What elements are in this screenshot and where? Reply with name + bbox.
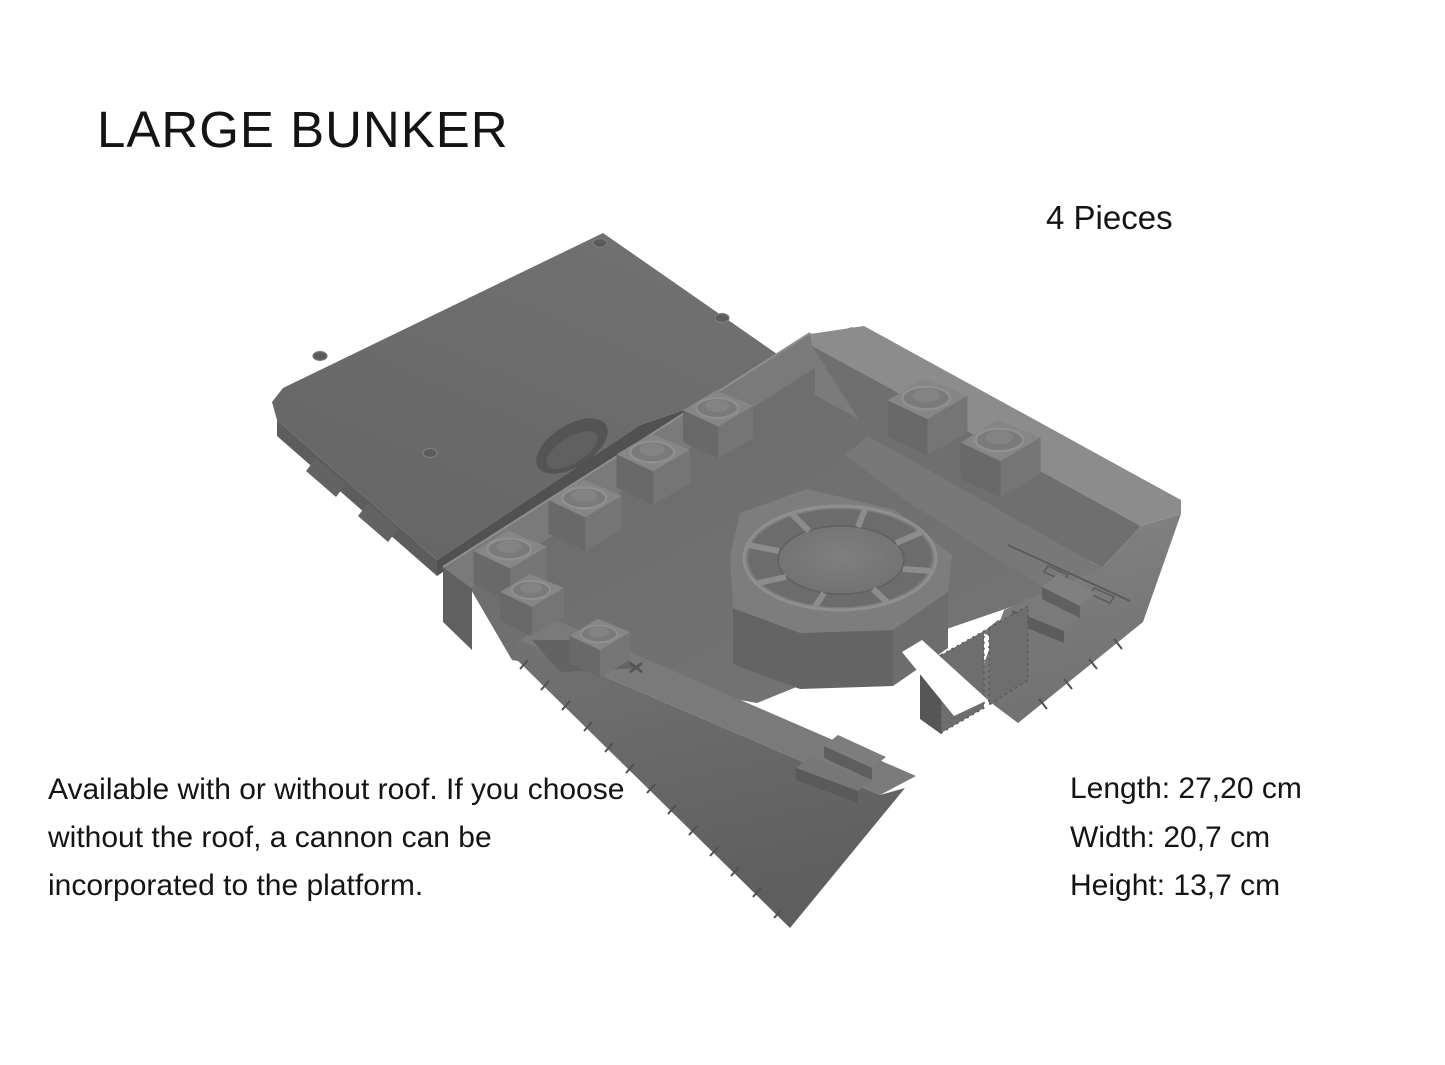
description-text: Available with or without roof. If you c… — [48, 766, 648, 910]
description-line-2: without the roof, a cannon can be — [48, 814, 648, 862]
description-line-3: incorporated to the platform. — [48, 862, 648, 910]
dimension-length: Length: 27,20 cm — [1070, 765, 1410, 814]
dimension-height: Height: 13,7 cm — [1070, 862, 1410, 911]
dimension-width: Width: 20,7 cm — [1070, 814, 1410, 863]
dimensions-list: Length: 27,20 cm Width: 20,7 cm Height: … — [1070, 765, 1410, 911]
description-line-1: Available with or without roof. If you c… — [48, 766, 648, 814]
platform-ring — [744, 506, 936, 610]
product-sheet: LARGE BUNKER 4 Pieces — [0, 0, 1445, 1065]
